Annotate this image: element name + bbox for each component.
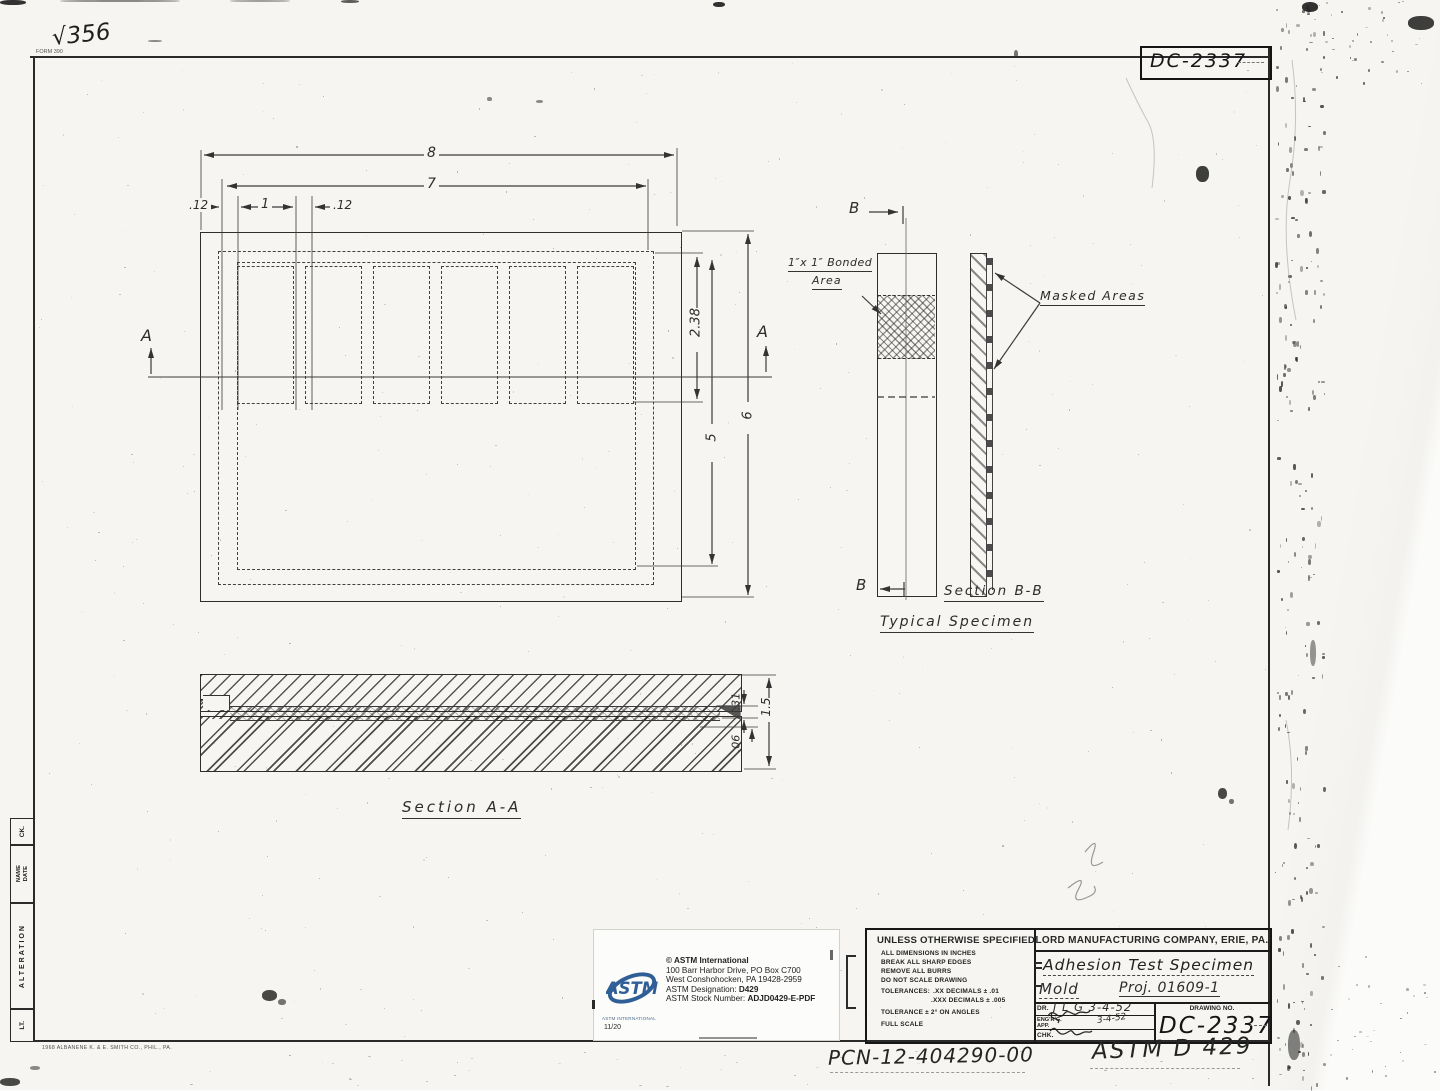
margin-box-alteration: ALTERATION bbox=[10, 902, 35, 1010]
ck-label: CK. bbox=[19, 826, 26, 837]
stray-dash bbox=[1035, 967, 1042, 969]
bonded-area bbox=[878, 295, 935, 359]
astm-label: ASTM ASTM INTERNATIONAL 11/20 © ASTM Int… bbox=[593, 929, 840, 1041]
dim-label-8: 8 bbox=[424, 145, 439, 161]
astm-address-block: © ASTM International 100 Barr Harbor Dri… bbox=[666, 956, 815, 1004]
label-tick bbox=[699, 1037, 757, 1039]
footer-underline bbox=[830, 1072, 1025, 1073]
margin-bracket bbox=[846, 955, 856, 1009]
margin-box-date-name: NAME DATE bbox=[10, 844, 35, 904]
paper-brand-print: 1968 ALBANENE K. & E. SMITH CO., PHIL., … bbox=[42, 1045, 172, 1051]
spec-line: DO NOT SCALE DRAWING bbox=[881, 977, 967, 984]
spec-header: UNLESS OTHERWISE SPECIFIED bbox=[877, 935, 1035, 946]
drawing-title-line2: Mold bbox=[1039, 980, 1079, 999]
margin-box-ck: CK. bbox=[10, 818, 35, 846]
astm-stock-number: ASTM Stock Number: ADJD0429-E-PDF bbox=[666, 994, 815, 1004]
astm-logo-caption: ASTM INTERNATIONAL bbox=[602, 1016, 656, 1021]
drawing-number-top: DC-2337 bbox=[1150, 50, 1247, 72]
section-aa-notch bbox=[203, 695, 230, 710]
tolerances-label: TOLERANCES: bbox=[881, 988, 930, 995]
pcn-note: PCN-12-404290-00 bbox=[828, 1042, 1034, 1070]
title-block: UNLESS OTHERWISE SPECIFIED ALL DIMENSION… bbox=[865, 928, 1272, 1044]
dim-label-238: 2.38 bbox=[689, 303, 704, 343]
drawing-number-box: DC-2337 bbox=[1140, 46, 1272, 80]
company-name: LORD MANUFACTURING COMPANY, ERIE, PA. bbox=[1034, 935, 1270, 946]
section-letter-b-top: B bbox=[849, 199, 859, 217]
astm-copyright: © ASTM International bbox=[666, 956, 815, 966]
astm-designation: ASTM Designation: D429 bbox=[666, 985, 815, 995]
project-number: Proj. 01609-1 bbox=[1119, 980, 1220, 997]
masked-layer-strip bbox=[986, 258, 993, 590]
masked-areas-label: Masked Areas bbox=[1040, 288, 1145, 306]
spec-line: ALL DIMENSIONS IN INCHES bbox=[881, 950, 976, 957]
dim-label-15: 1.5 bbox=[759, 693, 773, 721]
tolerance-angles: TOLERANCE ± 2° ON ANGLES bbox=[881, 1009, 980, 1016]
label-tick bbox=[592, 1000, 595, 1009]
specimen-slot bbox=[305, 266, 362, 404]
alteration-label: ALTERATION bbox=[19, 924, 26, 988]
margin-box-lt: LT. bbox=[10, 1008, 35, 1042]
typical-specimen-title: Typical Specimen bbox=[880, 614, 1034, 633]
stray-dash bbox=[1035, 962, 1042, 964]
eng-label2: APP. bbox=[1037, 1023, 1049, 1029]
dim-label-12b: .12 bbox=[330, 198, 355, 212]
dash-tail bbox=[1249, 1025, 1267, 1026]
section-letter-a-right: A bbox=[757, 322, 768, 341]
specimen-slot bbox=[237, 266, 294, 404]
dim-label-31: .31 bbox=[730, 688, 743, 716]
dim-label-12a: .12 bbox=[186, 198, 211, 212]
section-letter-b-bottom: B bbox=[856, 576, 866, 594]
section-aa-specimen-layer bbox=[230, 706, 720, 721]
section-aa-title: Section A-A bbox=[402, 798, 521, 819]
section-bb-title: Section B-B bbox=[944, 583, 1044, 602]
specimen-section-bar bbox=[970, 253, 987, 597]
astm-logo-icon: ASTM bbox=[606, 962, 658, 1014]
spec-line: BREAK ALL SHARP EDGES bbox=[881, 959, 971, 966]
tolerance-xx: .XX DECIMALS ± .01 bbox=[933, 988, 999, 995]
svg-text:ASTM: ASTM bbox=[606, 979, 658, 998]
drawing-no-label: DRAWING NO. bbox=[1154, 1005, 1270, 1012]
section-aa-bottom-plate bbox=[200, 716, 742, 772]
specimen-slot bbox=[509, 266, 566, 404]
bonded-area-label-line2: Area bbox=[812, 274, 842, 290]
drawing-title-line1: Adhesion Test Specimen bbox=[1043, 956, 1254, 976]
border-top bbox=[30, 56, 1270, 58]
dim-label-1: 1 bbox=[258, 197, 272, 212]
specimen-slot bbox=[577, 266, 634, 404]
specimen-slot bbox=[373, 266, 430, 404]
astm-ref-note: ASTM D 429 bbox=[1092, 1033, 1253, 1065]
dim-label-6: 6 bbox=[741, 404, 756, 428]
specimen-slots bbox=[237, 266, 634, 404]
bonded-area-label-line1: 1″x 1″ Bonded bbox=[788, 256, 872, 272]
dim-label-06: .06 bbox=[730, 730, 743, 758]
specimen-slot bbox=[441, 266, 498, 404]
section-letter-a-left: A bbox=[141, 326, 152, 345]
dash-tail bbox=[1238, 62, 1264, 63]
pencil-scribble bbox=[1068, 843, 1103, 899]
astm-address-1: 100 Barr Harbor Drive, PO Box C700 bbox=[666, 966, 815, 976]
label-tick bbox=[830, 950, 833, 960]
dim-label-5: 5 bbox=[705, 426, 720, 450]
stray-dash bbox=[1035, 985, 1041, 987]
date-label: DATE bbox=[23, 866, 29, 881]
lt-label: LT. bbox=[19, 1021, 26, 1030]
page-check-note: √356 bbox=[51, 19, 112, 51]
drawing-sheet: FORM 390 √356 DC-2337 8 7 .12 1 .12 2.38… bbox=[0, 0, 1440, 1090]
paper-creases bbox=[1126, 60, 1296, 830]
footer-underline bbox=[1090, 1068, 1240, 1069]
dim-label-7: 7 bbox=[424, 176, 439, 192]
scale-note: FULL SCALE bbox=[881, 1021, 923, 1028]
name-label: NAME bbox=[16, 865, 22, 882]
astm-date-code: 11/20 bbox=[604, 1024, 621, 1031]
tolerance-xxx: .XXX DECIMALS ± .005 bbox=[931, 997, 1005, 1004]
astm-address-2: West Conshohocken, PA 19428-2959 bbox=[666, 975, 815, 985]
chk-label: CHK. bbox=[1037, 1032, 1054, 1039]
spec-line: REMOVE ALL BURRS bbox=[881, 968, 951, 975]
dr-label: DR. bbox=[1037, 1005, 1049, 1012]
